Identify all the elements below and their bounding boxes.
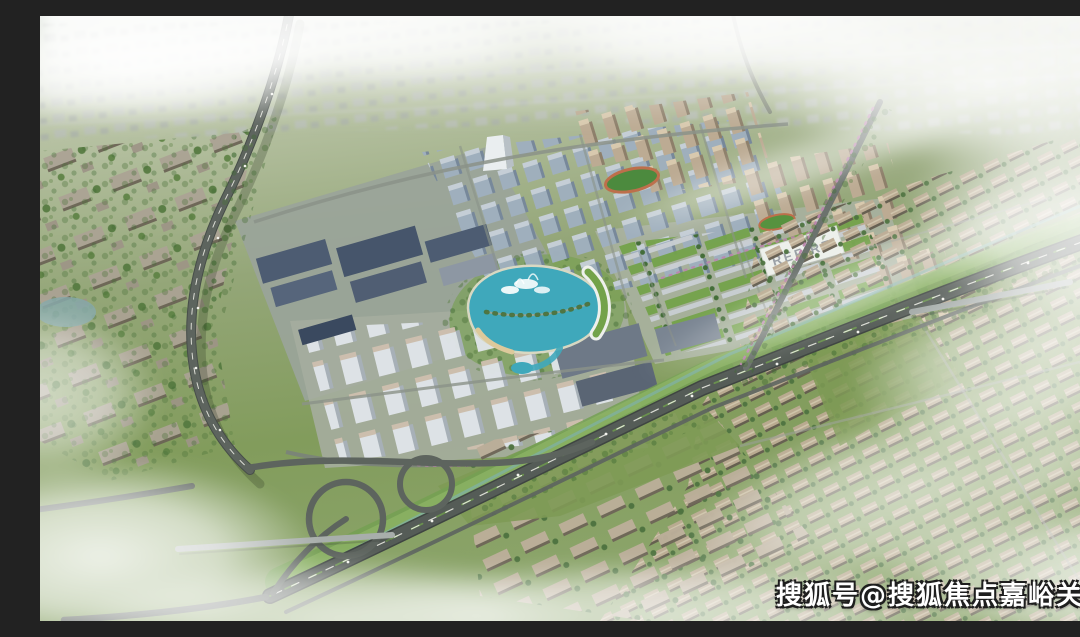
watermark-text: 搜狐号@搜狐焦点嘉峪关站 xyxy=(776,575,1080,612)
aerial-city-rendering: REFIRE xyxy=(40,16,1080,621)
right-haze-veil xyxy=(980,16,1080,621)
rendering-canvas: REFIRE xyxy=(40,16,1080,621)
landmark-tower xyxy=(483,135,514,171)
